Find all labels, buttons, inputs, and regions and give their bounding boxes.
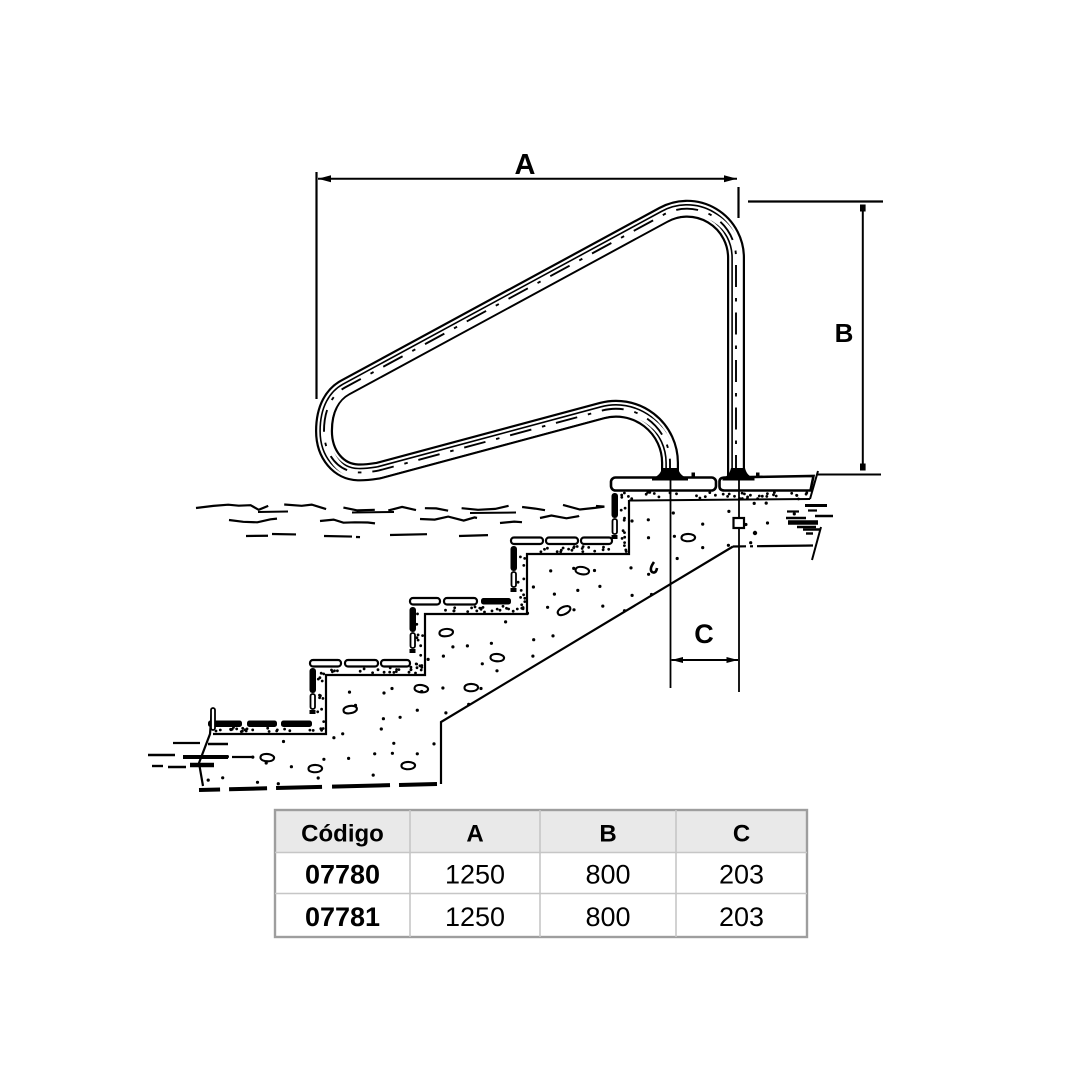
svg-text:Código: Código: [301, 821, 384, 848]
svg-text:A: A: [515, 149, 536, 181]
svg-text:1250: 1250: [445, 902, 505, 932]
svg-text:B: B: [835, 318, 854, 348]
svg-text:07781: 07781: [305, 902, 380, 932]
svg-text:07780: 07780: [305, 860, 380, 890]
svg-text:B: B: [599, 821, 616, 848]
svg-text:C: C: [694, 619, 714, 649]
svg-text:203: 203: [719, 902, 764, 932]
svg-text:A: A: [466, 821, 483, 848]
svg-text:C: C: [733, 821, 750, 848]
svg-text:800: 800: [585, 860, 630, 890]
svg-text:203: 203: [719, 860, 764, 890]
svg-text:1250: 1250: [445, 860, 505, 890]
svg-text:800: 800: [585, 902, 630, 932]
